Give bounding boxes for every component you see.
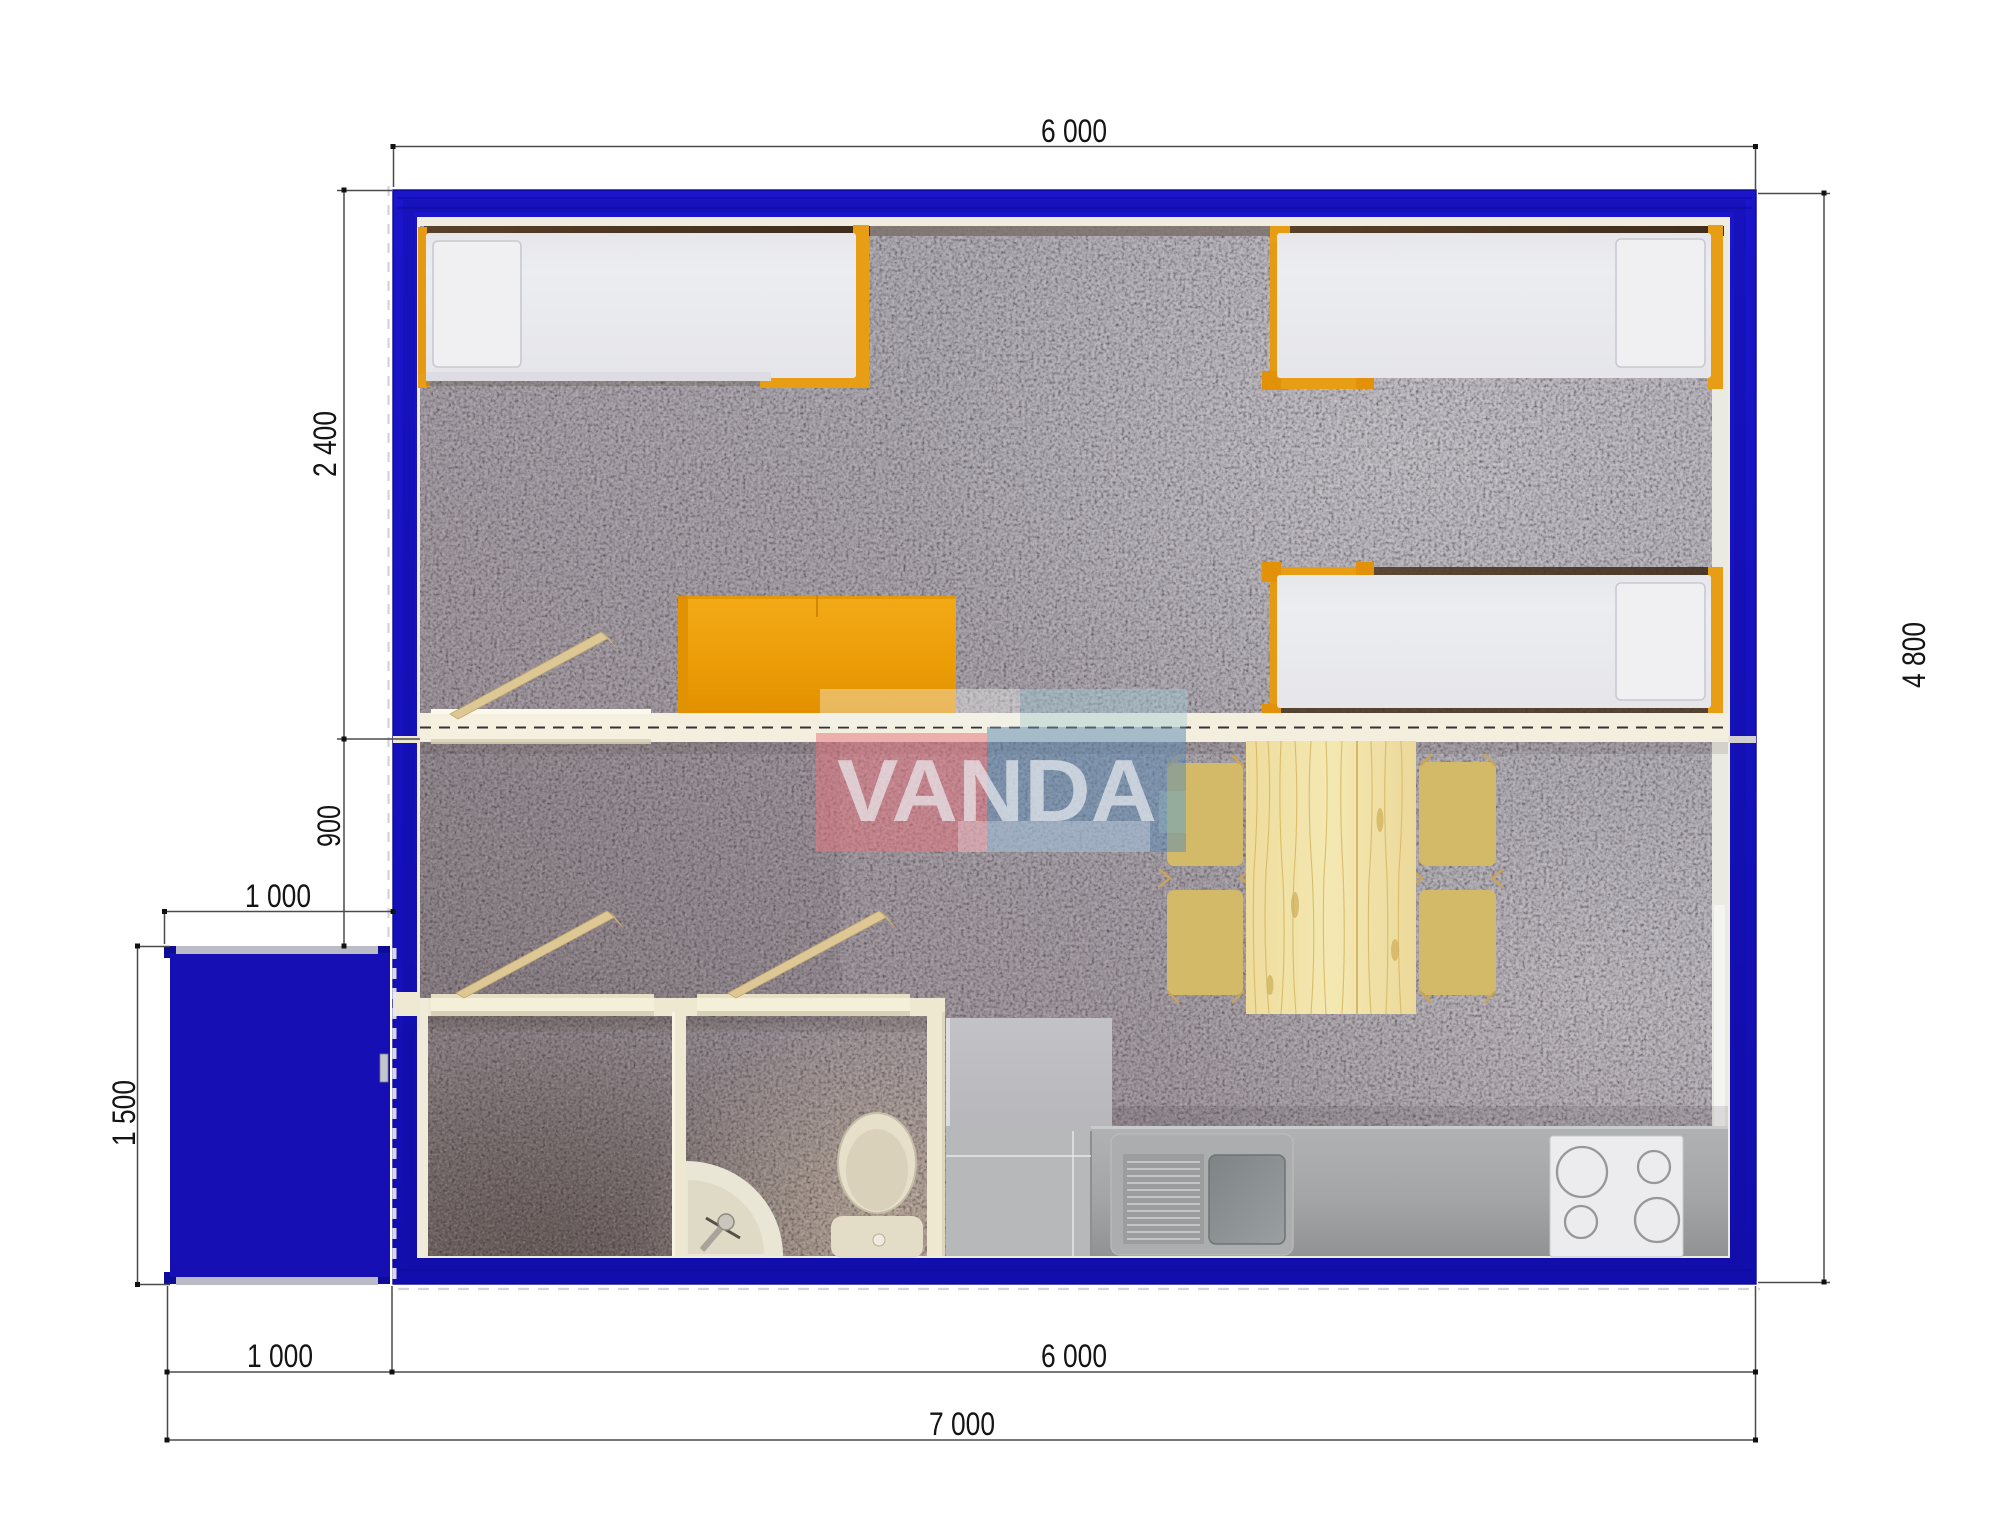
- svg-text:4 800: 4 800: [1896, 622, 1932, 688]
- svg-text:7 000: 7 000: [929, 1406, 995, 1442]
- svg-text:6 000: 6 000: [1041, 113, 1107, 149]
- svg-text:1 500: 1 500: [106, 1080, 142, 1146]
- svg-text:900: 900: [311, 805, 347, 847]
- svg-text:1 000: 1 000: [247, 1338, 313, 1374]
- svg-text:2 400: 2 400: [307, 411, 343, 477]
- svg-text:6 000: 6 000: [1041, 1338, 1107, 1374]
- svg-text:VANDA: VANDA: [837, 741, 1157, 840]
- svg-text:1 000: 1 000: [245, 878, 311, 914]
